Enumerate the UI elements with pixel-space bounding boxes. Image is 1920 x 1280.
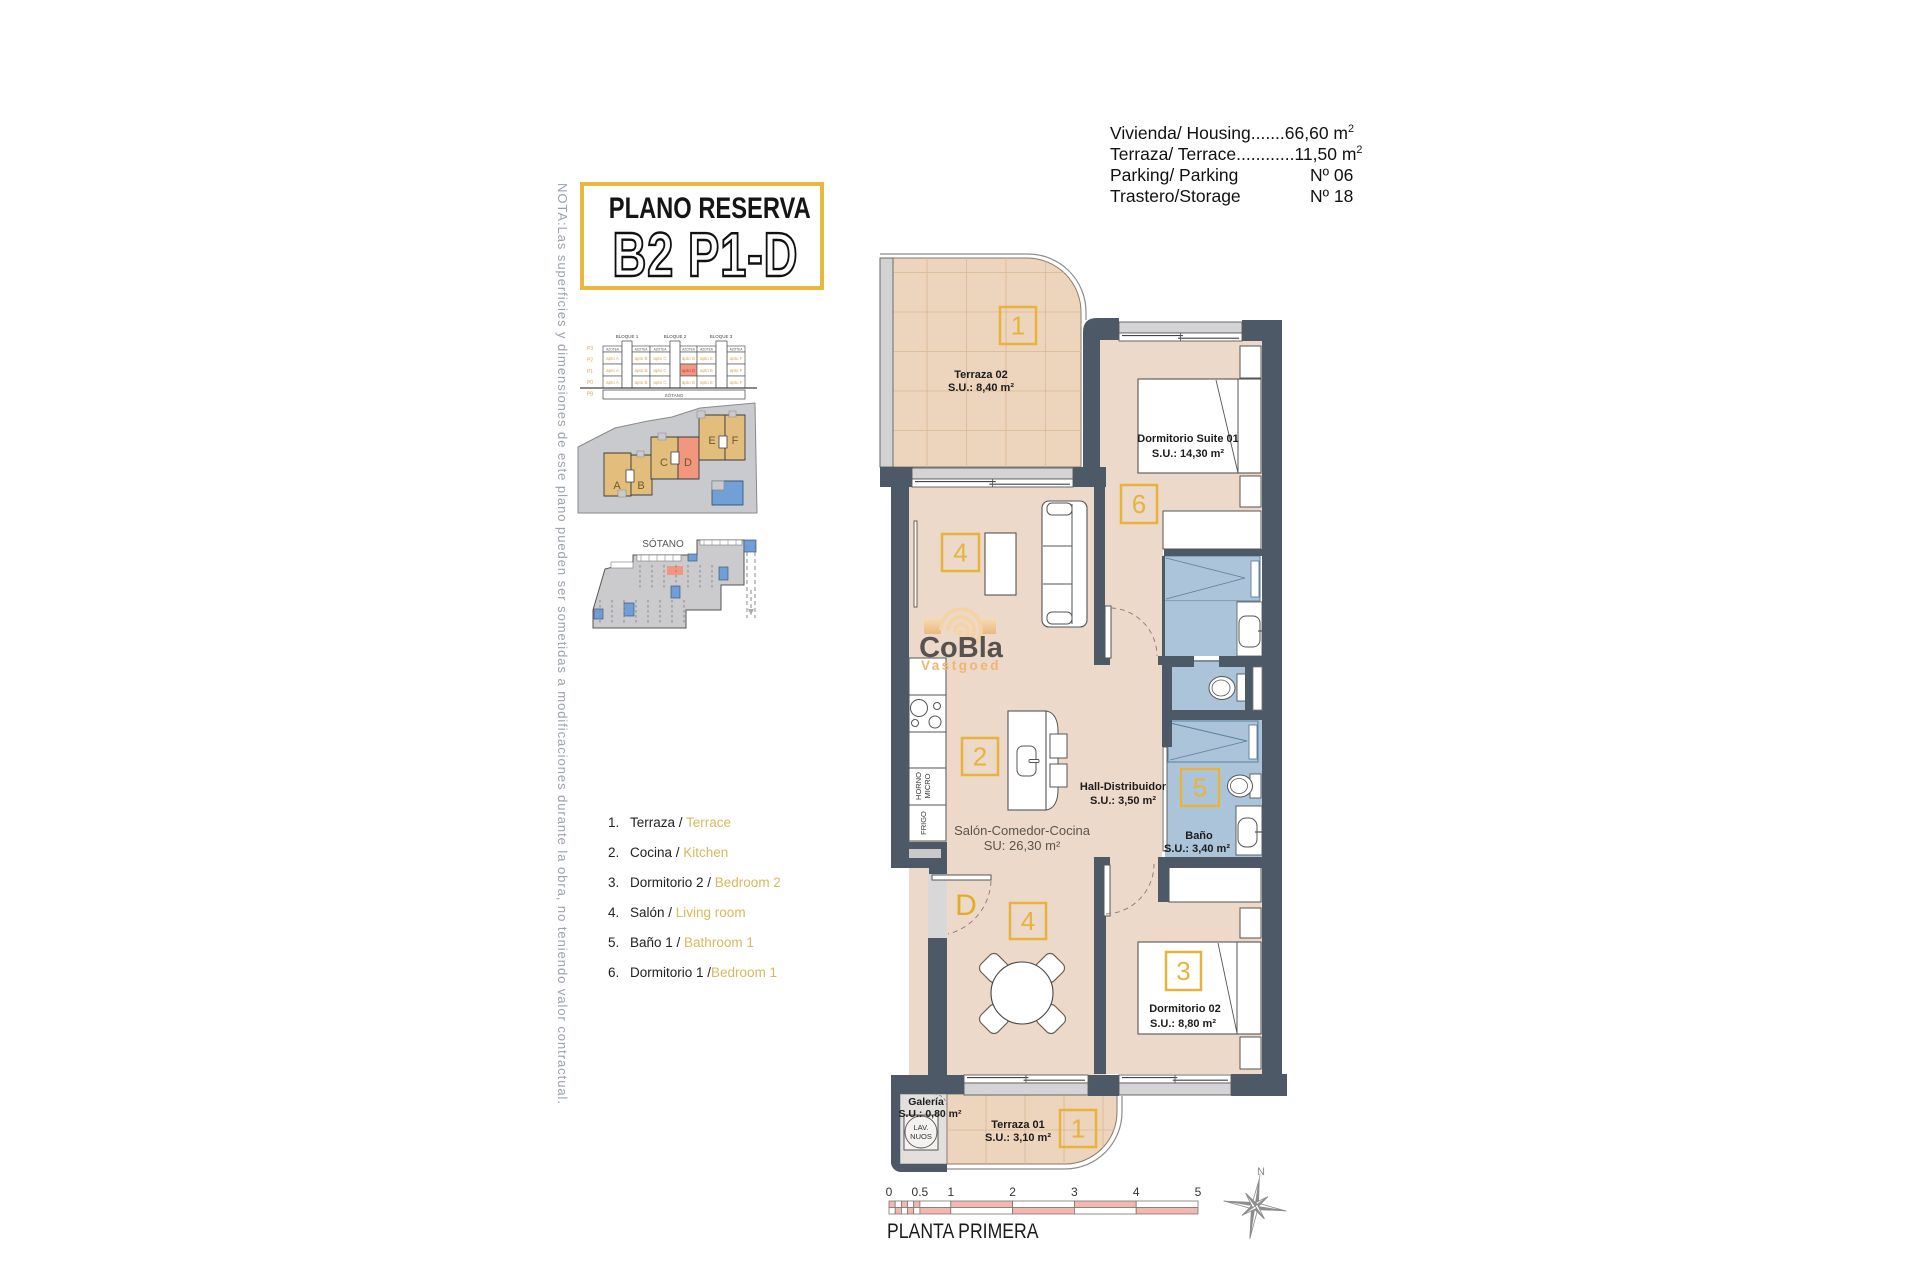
svg-text:S.U.: 8,80 m²: S.U.: 8,80 m² — [1150, 1018, 1216, 1030]
svg-text:5: 5 — [1195, 1185, 1202, 1199]
svg-text:N: N — [1257, 1166, 1265, 1178]
svg-text:B: B — [637, 480, 644, 492]
svg-text:apto F: apto F — [730, 380, 743, 385]
svg-text:apto D: apto D — [682, 356, 696, 361]
svg-text:D: D — [684, 457, 692, 469]
svg-text:4: 4 — [1021, 906, 1035, 936]
svg-text:AZOTEA: AZOTEA — [730, 348, 744, 352]
svg-text:apto F: apto F — [730, 368, 743, 373]
svg-text:PLANTA PRIMERA: PLANTA PRIMERA — [887, 1219, 1039, 1243]
svg-text:S.U.: 3,10 m²: S.U.: 3,10 m² — [985, 1132, 1051, 1144]
svg-text:AZOTEA: AZOTEA — [606, 348, 620, 352]
svg-text:AZOTEA: AZOTEA — [635, 348, 649, 352]
svg-text:apto C: apto C — [653, 368, 667, 373]
svg-text:apto C: apto C — [653, 356, 667, 361]
svg-text:AZOTEA: AZOTEA — [682, 348, 696, 352]
svg-text:apto E: apto E — [700, 356, 713, 361]
svg-text:E: E — [708, 435, 715, 447]
svg-text:Salón-Comedor-Cocina: Salón-Comedor-Cocina — [954, 823, 1091, 838]
svg-text:0.5: 0.5 — [912, 1185, 929, 1199]
svg-text:Galería: Galería — [908, 1096, 944, 1108]
svg-text:BLOQUE 1: BLOQUE 1 — [616, 334, 639, 339]
svg-text:apto A: apto A — [606, 356, 619, 361]
svg-text:1: 1 — [1011, 311, 1025, 341]
svg-text:MICRO: MICRO — [923, 773, 932, 798]
svg-text:S.U.: 14,30 m²: S.U.: 14,30 m² — [1152, 448, 1224, 460]
svg-text:apto E: apto E — [700, 368, 713, 373]
svg-text:NUOS: NUOS — [910, 1132, 932, 1141]
svg-text:P3: P3 — [587, 346, 593, 352]
svg-text:Baño: Baño — [1185, 830, 1213, 842]
svg-text:C: C — [660, 457, 668, 469]
svg-text:Terraza 02: Terraza 02 — [954, 369, 1008, 381]
svg-text:Vastgoed: Vastgoed — [921, 658, 1001, 673]
svg-text:apto F: apto F — [730, 356, 743, 361]
svg-text:SU: 26,30 m²: SU: 26,30 m² — [984, 838, 1061, 853]
svg-text:SÓTANO: SÓTANO — [642, 537, 684, 550]
svg-text:S.U.: 3,40 m²: S.U.: 3,40 m² — [1164, 843, 1230, 855]
svg-text:Hall-Distribuidor: Hall-Distribuidor — [1080, 781, 1167, 793]
svg-text:6: 6 — [1132, 489, 1146, 519]
svg-text:apto B: apto B — [634, 356, 647, 361]
svg-text:LAV.: LAV. — [913, 1123, 928, 1132]
svg-text:A: A — [613, 480, 621, 492]
svg-text:1: 1 — [947, 1185, 954, 1199]
svg-text:FRIGO: FRIGO — [919, 811, 928, 835]
svg-text:AZOTEA: AZOTEA — [700, 348, 714, 352]
svg-text:3: 3 — [1071, 1185, 1078, 1199]
svg-text:apto A: apto A — [606, 380, 619, 385]
svg-text:Terraza 01: Terraza 01 — [991, 1119, 1045, 1131]
svg-text:apto B: apto B — [634, 380, 647, 385]
svg-text:P1: P1 — [587, 369, 593, 375]
svg-text:1: 1 — [1071, 1114, 1085, 1144]
svg-text:Dormitorio Suite 01: Dormitorio Suite 01 — [1137, 433, 1238, 445]
svg-text:P2: P2 — [587, 357, 593, 363]
svg-text:0: 0 — [886, 1185, 893, 1199]
svg-text:F: F — [732, 435, 739, 447]
svg-text:2: 2 — [973, 742, 987, 772]
svg-text:apto E: apto E — [700, 380, 713, 385]
svg-text:P0: P0 — [587, 380, 593, 386]
svg-text:SÓTANO: SÓTANO — [665, 392, 684, 398]
svg-text:Dormitorio 02: Dormitorio 02 — [1149, 1003, 1221, 1015]
svg-text:apto C: apto C — [653, 380, 667, 385]
svg-text:PB: PB — [587, 392, 594, 398]
svg-text:D: D — [955, 889, 977, 922]
svg-text:3: 3 — [1176, 956, 1190, 986]
svg-text:S.U.: 8,40 m²: S.U.: 8,40 m² — [948, 382, 1014, 394]
svg-text:S.U.: 0,80 m²: S.U.: 0,80 m² — [898, 1108, 962, 1120]
svg-text:S.U.: 3,50 m²: S.U.: 3,50 m² — [1090, 795, 1156, 807]
svg-text:2: 2 — [1009, 1185, 1016, 1199]
svg-text:BLOQUE 2: BLOQUE 2 — [664, 334, 687, 339]
svg-text:AZOTEA: AZOTEA — [654, 348, 668, 352]
svg-text:HORNO: HORNO — [914, 772, 923, 800]
svg-text:apto A: apto A — [606, 368, 619, 373]
svg-text:apto B: apto B — [634, 368, 647, 373]
svg-text:apto D: apto D — [682, 368, 696, 373]
svg-text:4: 4 — [953, 538, 967, 568]
svg-text:BLOQUE 3: BLOQUE 3 — [710, 334, 733, 339]
svg-text:5: 5 — [1193, 773, 1207, 803]
svg-text:4: 4 — [1133, 1185, 1140, 1199]
svg-text:apto D: apto D — [682, 380, 696, 385]
